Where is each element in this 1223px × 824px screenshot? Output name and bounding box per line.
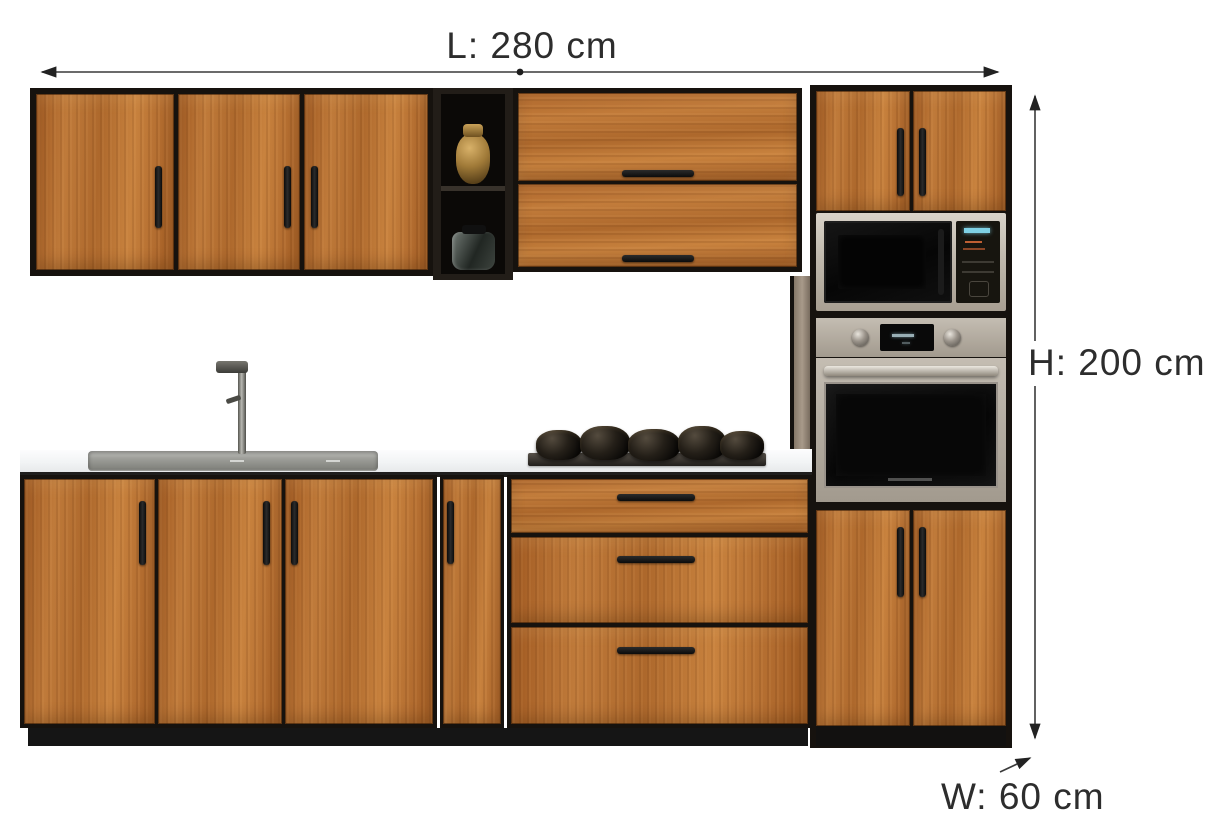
length-line-midpoint-dot	[517, 69, 524, 76]
dimension-lines	[0, 0, 1223, 824]
length-dimension-label: L: 280 cm	[332, 26, 732, 67]
width-dimension-arrow	[1000, 758, 1030, 772]
height-dimension-label: H: 200 cm	[1022, 341, 1212, 386]
width-dimension-label: W: 60 cm	[941, 777, 1105, 818]
kitchen-dimension-diagram: L: 280 cm H: 200 cm W: 60 cm	[0, 0, 1223, 824]
